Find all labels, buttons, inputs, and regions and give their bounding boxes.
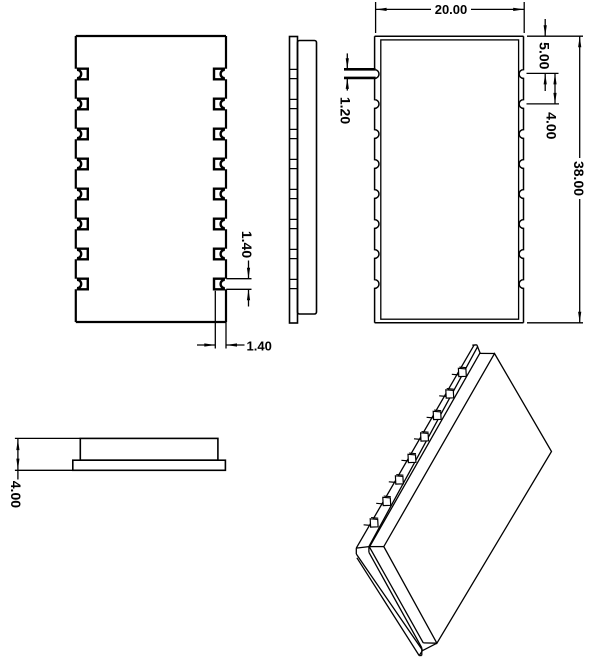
svg-text:5.00: 5.00	[537, 42, 553, 69]
svg-text:1.20: 1.20	[337, 97, 353, 124]
svg-text:38.00: 38.00	[571, 161, 587, 196]
svg-text:4.00: 4.00	[543, 112, 559, 139]
svg-text:4.00: 4.00	[8, 481, 24, 508]
svg-text:1.40: 1.40	[247, 339, 272, 354]
svg-text:1.40: 1.40	[239, 231, 255, 258]
svg-text:20.00: 20.00	[435, 2, 468, 17]
